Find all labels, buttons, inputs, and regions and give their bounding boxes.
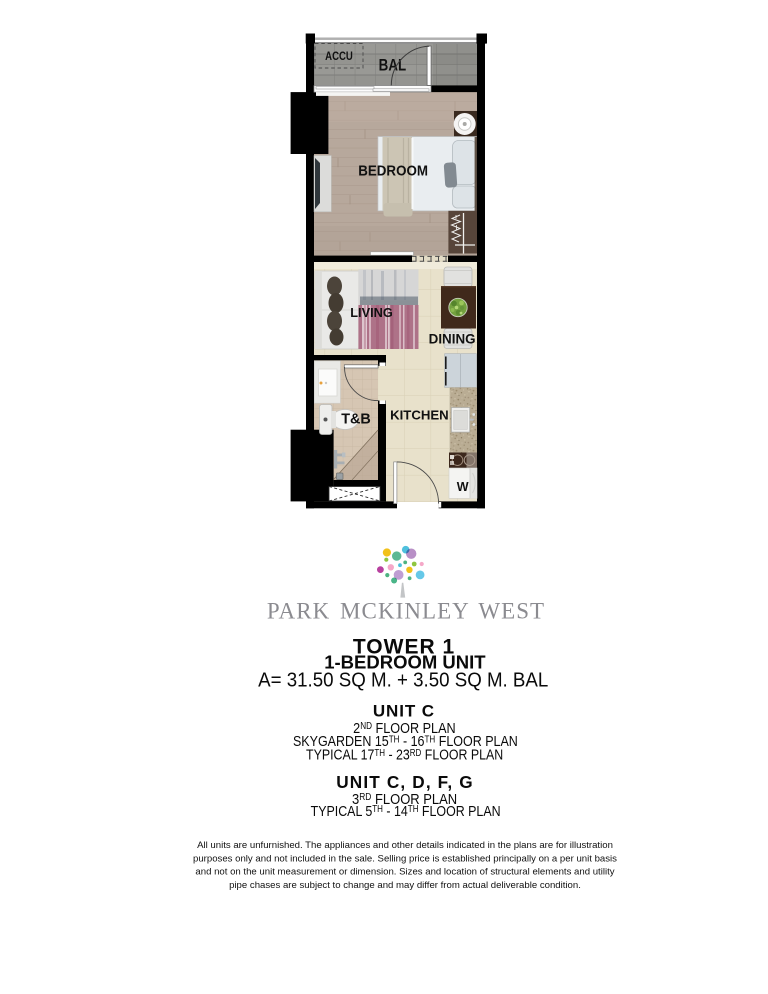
svg-text:All units are unfurnished. The: All units are unfurnished. The appliance… bbox=[197, 840, 613, 851]
svg-text:DINING: DINING bbox=[429, 332, 476, 347]
svg-text:UNIT C: UNIT C bbox=[373, 702, 435, 721]
svg-text:TYPICAL 5TH - 14TH FLOOR PLAN: TYPICAL 5TH - 14TH FLOOR PLAN bbox=[311, 803, 501, 819]
svg-text:PARK MCKINLEY WEST: PARK MCKINLEY WEST bbox=[267, 599, 545, 624]
svg-text:A= 31.50 SQ M. + 3.50 SQ M. BA: A= 31.50 SQ M. + 3.50 SQ M. BAL bbox=[258, 669, 548, 692]
svg-text:and not on the unit measuremen: and not on the unit measurement or dimen… bbox=[195, 867, 614, 878]
svg-text:UNIT C, D, F, G: UNIT C, D, F, G bbox=[336, 772, 474, 792]
svg-text:BAL: BAL bbox=[379, 56, 406, 75]
svg-text:W: W bbox=[457, 480, 469, 494]
svg-text:BEDROOM: BEDROOM bbox=[358, 163, 428, 180]
svg-text:T&B: T&B bbox=[341, 411, 371, 427]
svg-text:KITCHEN: KITCHEN bbox=[390, 408, 449, 423]
svg-text:LIVING: LIVING bbox=[350, 305, 393, 320]
svg-text:ACCU: ACCU bbox=[325, 50, 353, 63]
svg-text:pipe chases are subject to cha: pipe chases are subject to change and ma… bbox=[229, 880, 581, 891]
svg-text:purposes only and not included: purposes only and not included in the sa… bbox=[193, 853, 617, 864]
svg-text:TYPICAL 17TH - 23RD FLOOR PLAN: TYPICAL 17TH - 23RD FLOOR PLAN bbox=[306, 747, 503, 763]
